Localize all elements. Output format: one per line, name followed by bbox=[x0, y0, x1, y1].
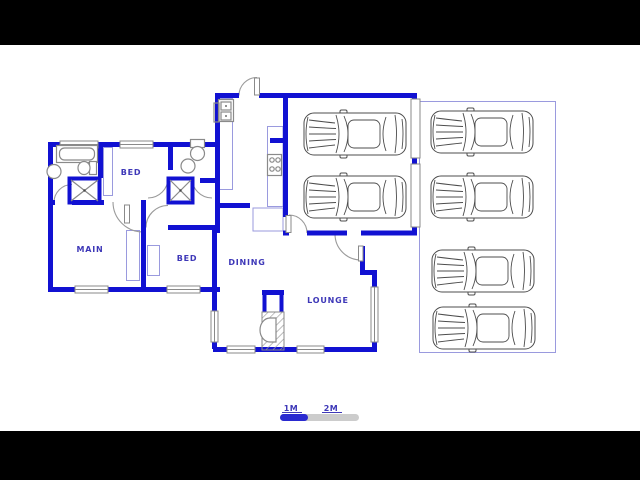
room-label-dining: DINING bbox=[228, 258, 265, 267]
car-icon bbox=[431, 173, 533, 221]
car-icon bbox=[431, 108, 533, 156]
door-leaf bbox=[359, 246, 364, 261]
car-icon bbox=[304, 110, 406, 158]
room-label-bed-2: BED bbox=[177, 254, 198, 263]
door-leaf bbox=[286, 216, 291, 233]
door-leaf bbox=[125, 205, 130, 223]
car-icon bbox=[433, 304, 535, 352]
letterbox-top bbox=[0, 0, 640, 45]
car-icon bbox=[304, 173, 406, 221]
floorplan-screenshot: BEDMAINBEDDININGLOUNGE 1M 2M bbox=[0, 0, 640, 480]
scale-label-2m: 2M bbox=[324, 404, 339, 413]
stove-icon bbox=[268, 155, 282, 176]
letterbox-bottom bbox=[0, 431, 640, 480]
wash-basin-icon bbox=[47, 165, 61, 179]
door-leaf bbox=[255, 78, 260, 95]
garage-door-icon bbox=[411, 99, 420, 158]
scale-label-1m: 1M bbox=[284, 404, 299, 413]
room-label-main: MAIN bbox=[76, 245, 103, 254]
room-label-lounge: LOUNGE bbox=[307, 296, 349, 305]
floorplan-canvas: BEDMAINBEDDININGLOUNGE 1M 2M bbox=[0, 0, 640, 480]
fireplace-icon bbox=[260, 312, 284, 350]
page-background bbox=[0, 0, 640, 480]
scale-bar-filled bbox=[280, 414, 308, 421]
garage-door-icon bbox=[411, 164, 420, 227]
car-icon bbox=[432, 247, 534, 295]
wash-basin-icon bbox=[181, 159, 195, 173]
room-label-bed-1: BED bbox=[121, 168, 142, 177]
